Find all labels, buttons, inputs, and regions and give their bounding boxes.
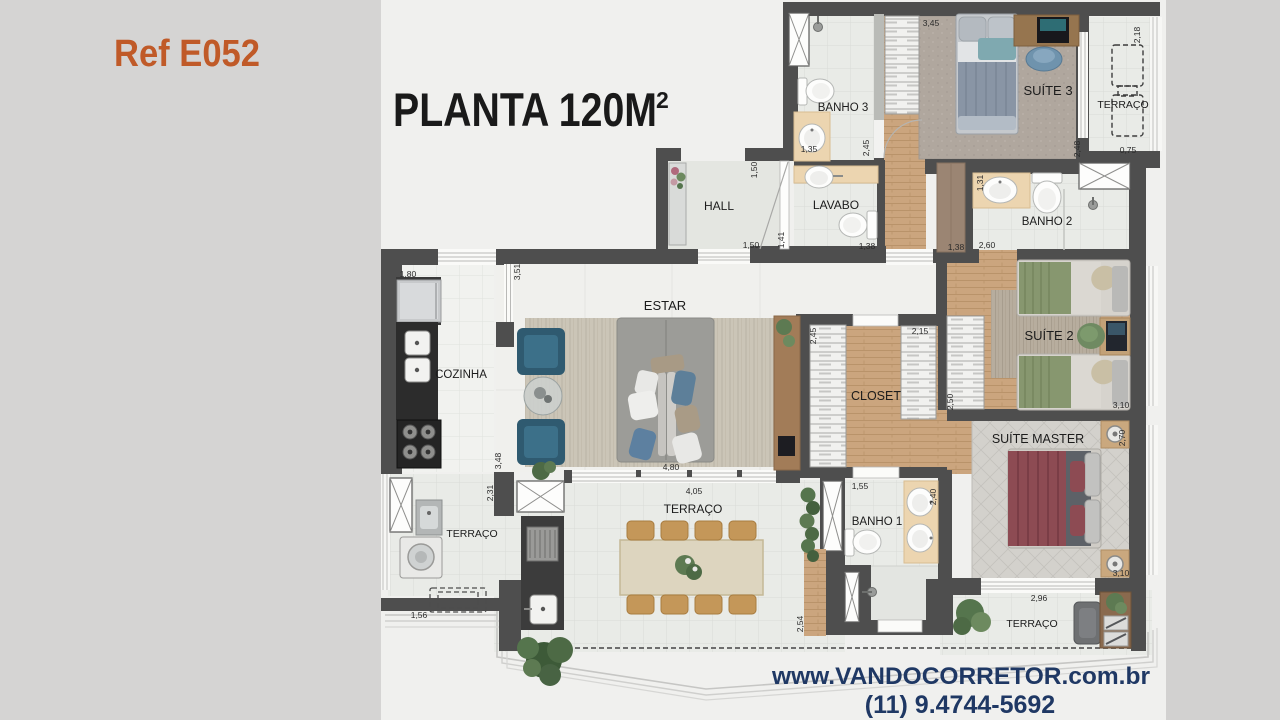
svg-text:TERRAÇO: TERRAÇO: [1097, 99, 1148, 111]
svg-text:CLOSET: CLOSET: [851, 389, 901, 403]
svg-text:1,38: 1,38: [859, 241, 876, 251]
svg-text:3,10: 3,10: [1113, 400, 1130, 410]
svg-text:SUÍTE MASTER: SUÍTE MASTER: [992, 431, 1084, 446]
svg-text:2,40: 2,40: [928, 488, 938, 505]
svg-text:2,70: 2,70: [1117, 429, 1127, 446]
svg-text:1,50: 1,50: [743, 240, 760, 250]
svg-text:ESTAR: ESTAR: [644, 298, 686, 313]
svg-text:1,55: 1,55: [852, 481, 869, 491]
svg-text:1,38: 1,38: [948, 242, 965, 252]
svg-text:2,45: 2,45: [808, 327, 818, 344]
svg-text:3,48: 3,48: [493, 452, 503, 469]
svg-text:2,50: 2,50: [945, 393, 955, 410]
svg-text:2,48: 2,48: [1072, 140, 1082, 157]
svg-text:2,96: 2,96: [1031, 593, 1048, 603]
svg-text:4,05: 4,05: [686, 486, 703, 496]
svg-text:BANHO 2: BANHO 2: [1022, 216, 1073, 228]
svg-text:TERRAÇO: TERRAÇO: [664, 502, 723, 516]
svg-text:3,45: 3,45: [923, 18, 940, 28]
svg-text:2,15: 2,15: [912, 326, 929, 336]
svg-text:0,75: 0,75: [1120, 145, 1137, 155]
svg-text:1,50: 1,50: [749, 161, 759, 178]
svg-text:HALL: HALL: [704, 199, 734, 213]
svg-text:SUÍTE 2: SUÍTE 2: [1024, 328, 1073, 343]
svg-text:BANHO 1: BANHO 1: [852, 516, 903, 528]
svg-text:1,35: 1,35: [801, 144, 818, 154]
svg-text:1,80: 1,80: [400, 269, 417, 279]
svg-text:2: 2: [656, 87, 669, 113]
svg-text:4,80: 4,80: [663, 462, 680, 472]
svg-text:BANHO 3: BANHO 3: [818, 102, 869, 114]
svg-text:Ref E052: Ref E052: [114, 33, 260, 75]
svg-text:2,54: 2,54: [795, 615, 805, 632]
svg-text:3,51: 3,51: [512, 263, 522, 280]
svg-text:1,41: 1,41: [776, 231, 786, 248]
svg-text:1,31: 1,31: [975, 174, 985, 191]
svg-text:2,31: 2,31: [485, 484, 495, 501]
svg-text:1,56: 1,56: [411, 610, 428, 620]
svg-text:SUÍTE 3: SUÍTE 3: [1023, 83, 1072, 98]
svg-text:LAVABO: LAVABO: [813, 198, 859, 212]
svg-text:www.VANDOCORRETOR.com.br: www.VANDOCORRETOR.com.br: [771, 663, 1150, 690]
svg-text:3,10: 3,10: [1113, 568, 1130, 578]
svg-text:2,45: 2,45: [861, 139, 871, 156]
svg-text:TERRAÇO: TERRAÇO: [446, 528, 497, 540]
svg-text:2,60: 2,60: [979, 240, 996, 250]
svg-text:2,18: 2,18: [1132, 26, 1142, 43]
svg-text:COZINHA: COZINHA: [435, 369, 487, 381]
svg-text:(11) 9.4744-5692: (11) 9.4744-5692: [865, 691, 1055, 719]
svg-text:PLANTA 120M: PLANTA 120M: [393, 83, 657, 136]
svg-text:TERRAÇO: TERRAÇO: [1006, 618, 1057, 630]
